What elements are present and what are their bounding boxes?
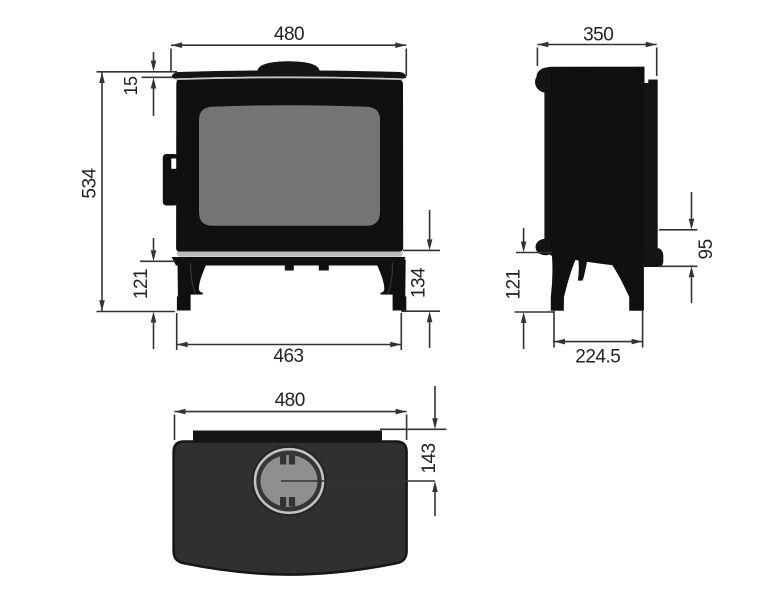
svg-text:350: 350 xyxy=(583,25,613,46)
svg-text:480: 480 xyxy=(275,390,305,411)
svg-text:463: 463 xyxy=(273,346,303,367)
svg-text:95: 95 xyxy=(696,239,717,259)
svg-text:134: 134 xyxy=(408,267,429,298)
svg-text:224.5: 224.5 xyxy=(575,347,620,368)
svg-text:121: 121 xyxy=(131,269,152,299)
svg-text:121: 121 xyxy=(503,269,524,299)
svg-text:15: 15 xyxy=(121,76,141,96)
svg-text:143: 143 xyxy=(419,443,440,473)
svg-text:534: 534 xyxy=(80,167,101,198)
svg-text:480: 480 xyxy=(274,24,304,45)
